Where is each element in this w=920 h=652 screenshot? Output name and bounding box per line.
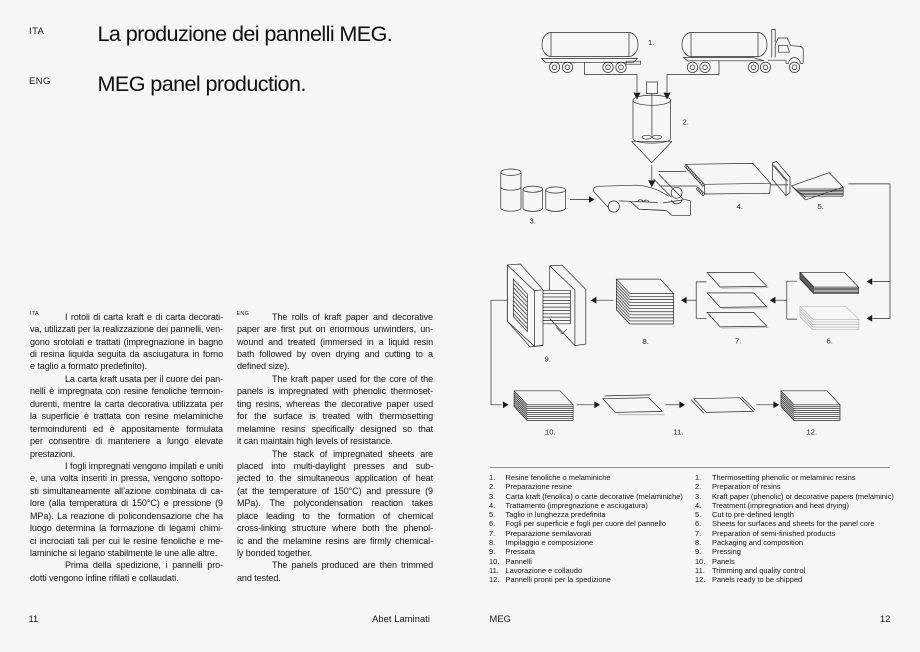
svg-text:9.: 9. [545,355,551,364]
svg-text:4.: 4. [737,202,743,211]
svg-text:2.: 2. [683,118,689,127]
svg-text:11.: 11. [674,427,684,436]
svg-text:5.: 5. [818,202,824,211]
svg-text:6.: 6. [827,336,833,345]
svg-text:7.: 7. [735,336,741,345]
svg-text:8.: 8. [643,337,649,346]
svg-text:1.: 1. [648,38,654,47]
svg-text:10.: 10. [545,427,556,436]
svg-text:12.: 12. [807,427,818,436]
svg-text:3.: 3. [530,217,536,226]
